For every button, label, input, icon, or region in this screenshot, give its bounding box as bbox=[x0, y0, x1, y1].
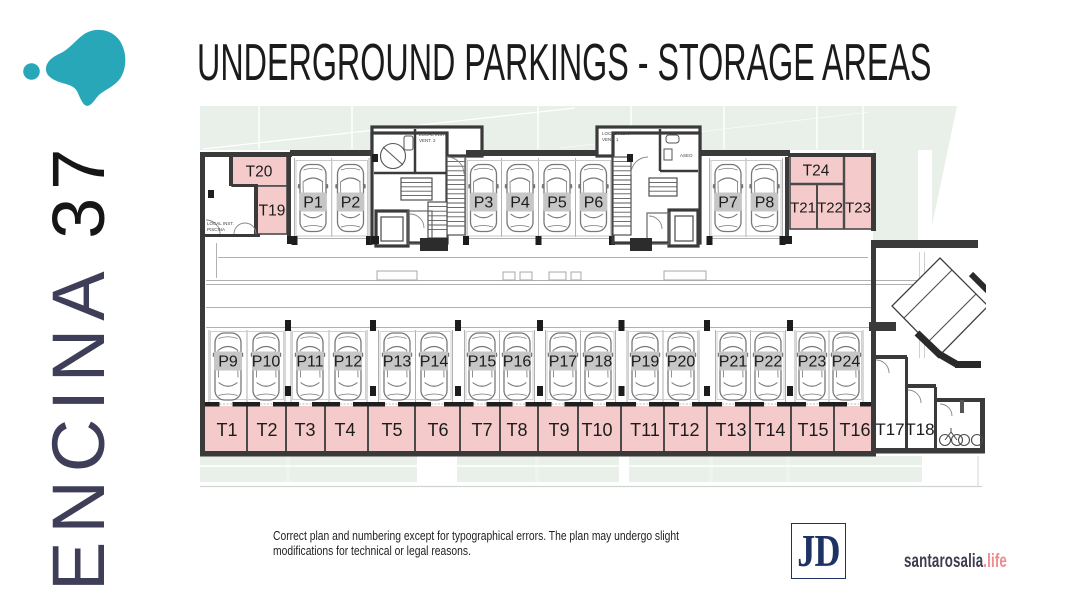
svg-text:P18: P18 bbox=[584, 354, 613, 371]
svg-text:T17: T17 bbox=[875, 420, 904, 439]
svg-text:T18: T18 bbox=[905, 420, 934, 439]
svg-text:P12: P12 bbox=[334, 354, 363, 371]
svg-text:T10: T10 bbox=[581, 420, 612, 440]
svg-text:P20: P20 bbox=[667, 354, 696, 371]
svg-text:T2: T2 bbox=[256, 420, 277, 440]
svg-text:T22: T22 bbox=[817, 199, 843, 216]
svg-text:T16: T16 bbox=[839, 420, 870, 440]
svg-text:T19: T19 bbox=[259, 202, 286, 219]
svg-text:P16: P16 bbox=[503, 354, 532, 371]
svg-text:T9: T9 bbox=[548, 420, 569, 440]
svg-text:P11: P11 bbox=[296, 354, 323, 371]
svg-text:P14: P14 bbox=[420, 354, 449, 371]
svg-text:T23: T23 bbox=[845, 199, 871, 216]
svg-text:P7: P7 bbox=[718, 195, 738, 212]
svg-text:P9: P9 bbox=[218, 354, 238, 371]
svg-text:T8: T8 bbox=[506, 420, 527, 440]
svg-text:PISCINA: PISCINA bbox=[207, 227, 225, 232]
svg-text:T7: T7 bbox=[471, 420, 492, 440]
svg-text:P6: P6 bbox=[584, 195, 604, 212]
svg-text:T14: T14 bbox=[754, 420, 785, 440]
svg-text:T6: T6 bbox=[427, 420, 448, 440]
svg-text:P17: P17 bbox=[549, 354, 578, 371]
svg-text:T11: T11 bbox=[630, 420, 660, 440]
svg-text:T5: T5 bbox=[381, 420, 402, 440]
svg-text:LOCAL INST.: LOCAL INST. bbox=[419, 132, 446, 137]
svg-text:P3: P3 bbox=[474, 195, 494, 212]
svg-text:P15: P15 bbox=[468, 354, 497, 371]
svg-text:P4: P4 bbox=[510, 195, 530, 212]
svg-text:ASEO: ASEO bbox=[680, 153, 693, 158]
svg-text:LOCAL INST.: LOCAL INST. bbox=[602, 131, 629, 136]
svg-text:P22: P22 bbox=[754, 354, 783, 371]
svg-text:P19: P19 bbox=[631, 354, 660, 371]
svg-text:P2: P2 bbox=[341, 195, 361, 212]
svg-text:P24: P24 bbox=[832, 354, 861, 371]
svg-text:P21: P21 bbox=[719, 354, 748, 371]
svg-text:T4: T4 bbox=[334, 420, 355, 440]
svg-text:T12: T12 bbox=[668, 420, 699, 440]
svg-text:T15: T15 bbox=[797, 420, 828, 440]
svg-text:P23: P23 bbox=[798, 354, 827, 371]
svg-text:T24: T24 bbox=[803, 162, 830, 179]
svg-text:T3: T3 bbox=[294, 420, 315, 440]
svg-text:T21: T21 bbox=[790, 199, 816, 216]
svg-text:LOCAL INST.: LOCAL INST. bbox=[207, 221, 234, 226]
svg-text:T20: T20 bbox=[246, 163, 273, 180]
svg-text:T13: T13 bbox=[715, 420, 746, 440]
svg-text:T1: T1 bbox=[216, 420, 237, 440]
svg-text:P8: P8 bbox=[755, 195, 775, 212]
svg-text:VENT. 2: VENT. 2 bbox=[419, 138, 436, 143]
svg-text:P13: P13 bbox=[383, 354, 412, 371]
svg-text:P5: P5 bbox=[547, 195, 567, 212]
svg-text:P1: P1 bbox=[303, 195, 323, 212]
svg-text:P10: P10 bbox=[252, 354, 281, 371]
svg-text:VENT. 1: VENT. 1 bbox=[602, 137, 619, 142]
